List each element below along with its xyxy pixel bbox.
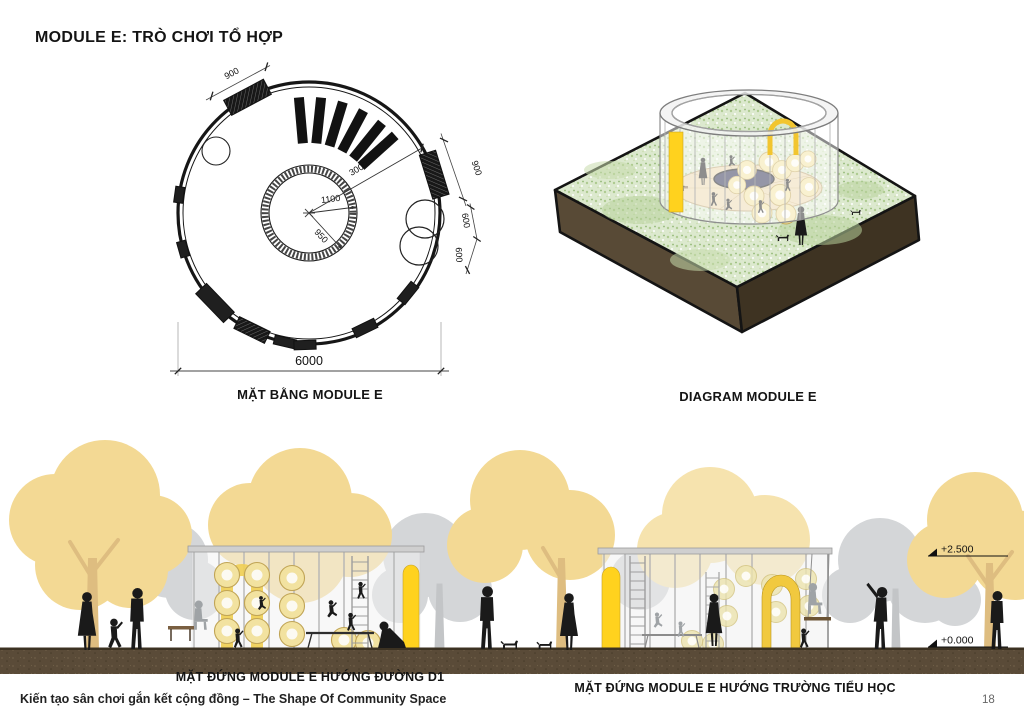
- yellow-door-left: [403, 565, 419, 648]
- page-title: MODULE E: TRÒ CHƠI TỔ HỢP: [35, 29, 283, 47]
- dim-value-600-a: 600: [460, 212, 472, 229]
- presentation-page: MODULE E: TRÒ CHƠI TỔ HỢP: [0, 0, 1024, 724]
- pavilion-roof-beam: [598, 548, 832, 554]
- person-child: [108, 619, 123, 648]
- level-value-upper: +2.500: [941, 544, 974, 556]
- elevations-strip: +2.500 +0.000: [0, 430, 1024, 676]
- pavilion-roof-beam: [188, 546, 424, 552]
- diagram-caption: DIAGRAM MODULE E: [590, 389, 906, 404]
- level-value-lower: +0.000: [941, 635, 974, 647]
- dim-value-900-right: 900: [470, 159, 484, 176]
- dim-value-950: 950: [312, 227, 330, 245]
- dim-value-600-b: 600: [454, 247, 465, 263]
- page-number: 18: [982, 694, 995, 706]
- plan-drawing: 1100 950 3000 900 900: [150, 56, 498, 408]
- elevation-right-caption: MẶT ĐỨNG MODULE E HƯỚNG TRƯỜNG TIỂU HỌC: [525, 681, 945, 695]
- footer-project-name: Kiến tạo sân chơi gắn kết cộng đồng – Th…: [20, 692, 446, 706]
- diagram-yellow-door: [669, 132, 683, 212]
- diagram-3d: [535, 68, 935, 343]
- plan-fan-bars: [299, 97, 395, 166]
- bench-left: [168, 626, 194, 641]
- dim-value-6000: 6000: [295, 354, 323, 368]
- yellow-door-right: [602, 567, 620, 648]
- dim-value-900-top: 900: [223, 65, 241, 81]
- elevation-left-caption: MẶT ĐỨNG MODULE E HƯỚNG ĐƯỜNG D1: [120, 670, 500, 684]
- dimension-portholes-600: 600 600: [454, 204, 481, 275]
- plan-caption: MẶT BẰNG MODULE E: [155, 387, 465, 402]
- dimension-radius-950: 950: [309, 213, 342, 249]
- dim-value-1100: 1100: [320, 193, 340, 205]
- level-marker-lower: +0.000: [928, 635, 1008, 648]
